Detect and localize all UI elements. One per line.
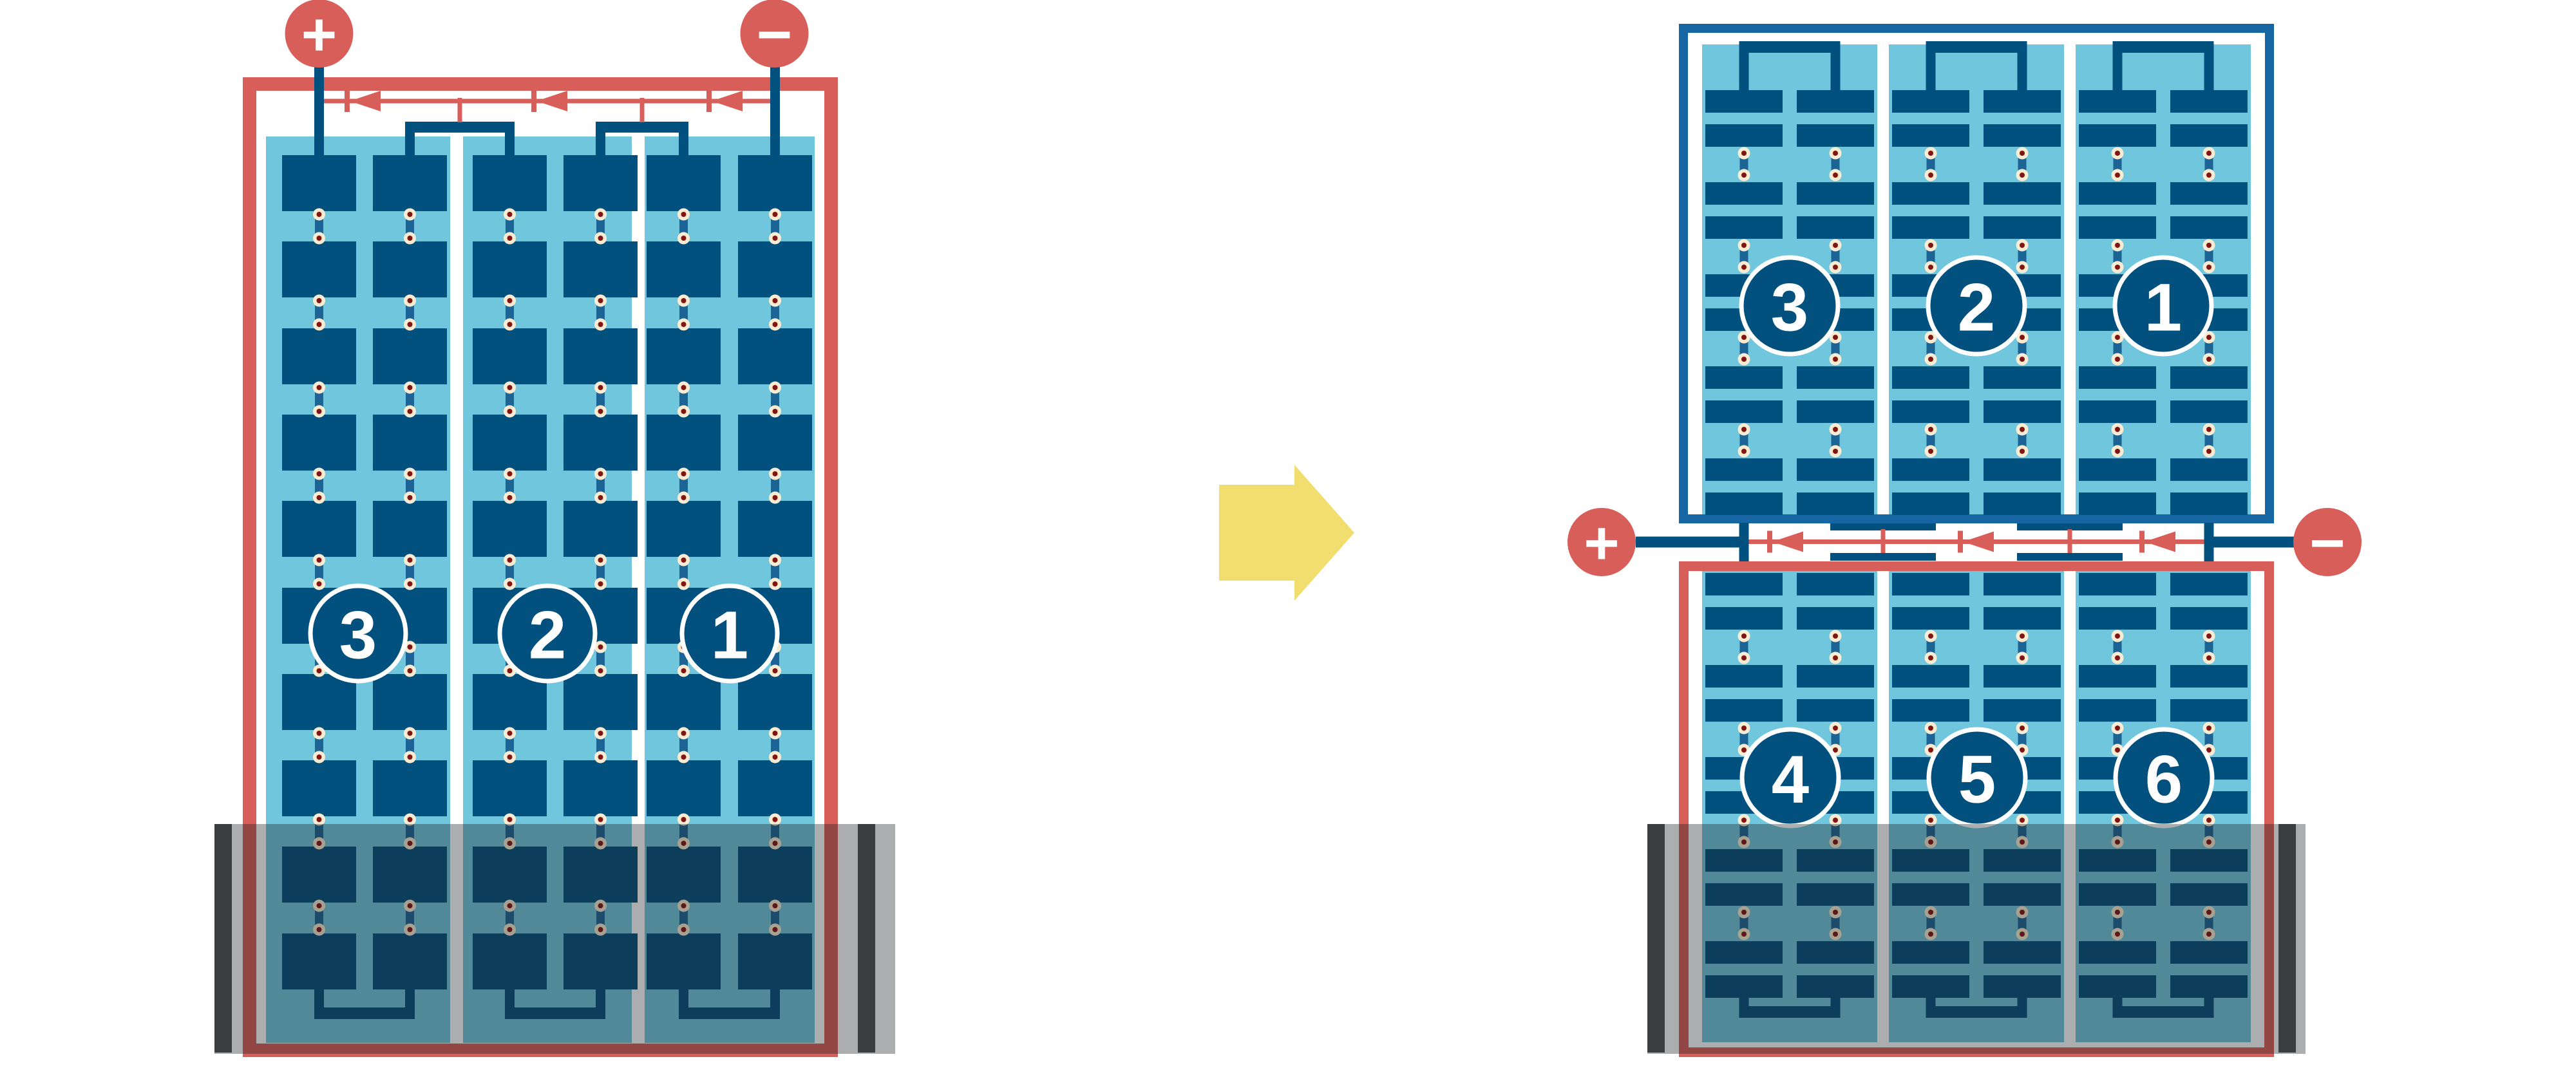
- solder-dot: [1833, 655, 1838, 660]
- solder-dot: [2115, 173, 2120, 178]
- solder-dot: [598, 322, 603, 327]
- solder-dot: [773, 236, 778, 241]
- solder-dot: [2020, 151, 2025, 156]
- solder-dot: [1928, 151, 1933, 156]
- solar-cell: [1984, 458, 2061, 481]
- solder-dot: [317, 385, 322, 390]
- solar-cell: [1705, 458, 1783, 481]
- solder-dot: [408, 668, 413, 673]
- shade-wall: [858, 824, 875, 1053]
- solar-cell: [1705, 400, 1783, 423]
- solar-cell: [2170, 216, 2248, 239]
- solar-cell: [647, 674, 721, 730]
- solder-dot: [681, 212, 687, 217]
- solder-dot: [2020, 449, 2025, 454]
- badge-number: 2: [1958, 270, 1995, 346]
- solder-dot: [2115, 335, 2120, 340]
- solder-dot: [1741, 655, 1747, 660]
- solder-dot: [2115, 151, 2120, 156]
- solder-dot: [2206, 427, 2211, 432]
- turnaround-bar: [2113, 41, 2214, 53]
- solder-dot: [507, 298, 513, 303]
- solder-dot: [773, 557, 778, 563]
- solder-dot: [317, 409, 322, 414]
- solar-cell: [282, 501, 356, 557]
- solar-cell: [563, 241, 638, 297]
- solder-dot: [507, 581, 513, 586]
- solar-cell: [2079, 699, 2156, 722]
- junction-stub: [2017, 553, 2123, 561]
- solder-dot: [773, 322, 778, 327]
- solder-dot: [1928, 427, 1933, 432]
- solder-dot: [2115, 655, 2120, 660]
- solar-cell: [1984, 665, 2061, 688]
- solder-dot: [2020, 427, 2025, 432]
- solar-cell: [2170, 458, 2248, 481]
- solder-dot: [317, 731, 322, 736]
- right-module: 321456+−: [1567, 28, 2362, 1054]
- solder-dot: [317, 236, 322, 241]
- bypass-diode-icon: [706, 90, 743, 112]
- solder-dot: [2115, 633, 2120, 639]
- solder-dot: [2206, 173, 2211, 178]
- solar-cell: [2170, 665, 2248, 688]
- solar-cell: [1705, 573, 1783, 595]
- solar-cell: [1892, 665, 1969, 688]
- solder-dot: [1833, 818, 1838, 823]
- solder-dot: [681, 817, 687, 822]
- solar-cell: [1984, 607, 2061, 630]
- solar-cell: [738, 241, 812, 297]
- solder-dot: [408, 817, 413, 822]
- solder-dot: [317, 668, 322, 673]
- bypass-diode-icon: [1958, 531, 1994, 553]
- solar-cell: [2170, 400, 2248, 423]
- solder-dot: [1833, 243, 1838, 248]
- diode-triangle: [536, 91, 567, 111]
- solar-cell: [647, 760, 721, 816]
- negative-terminal: −: [2293, 508, 2362, 577]
- string-number-badge: 5: [1929, 729, 2025, 826]
- string-number-badge: 3: [1741, 258, 1838, 354]
- terminal-sign: +: [1584, 509, 1619, 577]
- solder-dot: [681, 236, 687, 241]
- solder-dot: [1833, 173, 1838, 178]
- solder-dot: [408, 471, 413, 476]
- solder-dot: [2020, 633, 2025, 639]
- terminal-sign: +: [301, 1, 337, 69]
- solder-dot: [2115, 449, 2120, 454]
- badge-number: 3: [339, 598, 377, 673]
- solder-dot: [408, 557, 413, 563]
- solar-cell: [373, 760, 447, 816]
- solar-cell: [2170, 182, 2248, 205]
- solder-dot: [317, 322, 322, 327]
- solar-cell: [1892, 400, 1969, 423]
- solder-dot: [408, 212, 413, 217]
- solder-dot: [681, 557, 687, 563]
- solder-dot: [2115, 747, 2120, 753]
- solder-dot: [507, 731, 513, 736]
- solar-cell: [563, 760, 638, 816]
- bypass-diode-icon: [1767, 531, 1803, 553]
- solar-cell: [2170, 607, 2248, 630]
- solder-dot: [598, 385, 603, 390]
- solar-cell: [473, 760, 547, 816]
- solar-cell: [1984, 216, 2061, 239]
- shade-wall: [1647, 824, 1665, 1053]
- diode-triangle: [2145, 532, 2175, 552]
- solar-cell: [1797, 492, 1874, 515]
- bypass-diode-icon: [2139, 531, 2175, 553]
- solder-dot: [773, 385, 778, 390]
- solder-dot: [1741, 427, 1747, 432]
- solder-dot: [598, 236, 603, 241]
- solar-cell: [282, 155, 356, 211]
- badge-number: 4: [1772, 742, 1809, 818]
- solder-dot: [1833, 427, 1838, 432]
- solar-cell: [2079, 216, 2156, 239]
- solder-dot: [1741, 173, 1747, 178]
- solder-dot: [681, 298, 687, 303]
- turnaround-bar: [1739, 41, 1841, 53]
- string-number-badge: 2: [1928, 258, 2025, 354]
- solar-cell: [1705, 665, 1783, 688]
- diode-tap-stub: [1881, 529, 1886, 553]
- badge-number: 5: [1958, 742, 1996, 818]
- solar-cell: [1892, 124, 1969, 147]
- solder-dot: [317, 817, 322, 822]
- solder-dot: [1928, 243, 1933, 248]
- solder-dot: [2020, 265, 2025, 270]
- solar-cell: [1892, 216, 1969, 239]
- solar-cell: [373, 501, 447, 557]
- solder-dot: [317, 581, 322, 586]
- solder-dot: [2206, 357, 2211, 362]
- solar-cell: [1892, 607, 1969, 630]
- solar-cell: [2170, 124, 2248, 147]
- solar-cell: [473, 415, 547, 471]
- solar-cell: [1705, 699, 1783, 722]
- bypass-diode-icon: [531, 90, 567, 112]
- solder-dot: [681, 581, 687, 586]
- diode-cathode-bar: [531, 90, 536, 112]
- solar-cell: [2079, 458, 2156, 481]
- solder-dot: [2206, 818, 2211, 823]
- solder-dot: [507, 322, 513, 327]
- solder-dot: [2020, 818, 2025, 823]
- solar-cell: [563, 674, 638, 730]
- solar-cell: [282, 760, 356, 816]
- junction-bar: [596, 122, 688, 133]
- solar-cell: [1705, 216, 1783, 239]
- solder-dot: [2206, 655, 2211, 660]
- solar-cell: [563, 328, 638, 384]
- solar-cell: [1797, 216, 1874, 239]
- left-module: 321+−: [214, 0, 895, 1054]
- solder-dot: [507, 817, 513, 822]
- solder-dot: [507, 668, 513, 673]
- solder-dot: [1833, 633, 1838, 639]
- solder-dot: [2020, 726, 2025, 731]
- right-module-top-half: 321: [1683, 28, 2269, 519]
- solar-cell: [473, 674, 547, 730]
- solder-dot: [598, 817, 603, 822]
- bypass-diode-line: [319, 90, 775, 112]
- solder-dot: [1928, 726, 1933, 731]
- solder-dot: [408, 731, 413, 736]
- terminal-sign: −: [2309, 509, 2345, 577]
- solder-dot: [1833, 357, 1838, 362]
- solar-cell: [282, 415, 356, 471]
- solar-cell: [738, 415, 812, 471]
- solar-cell: [2170, 699, 2248, 722]
- solar-cell: [1984, 182, 2061, 205]
- solar-cell: [1892, 458, 1969, 481]
- solar-cell: [282, 328, 356, 384]
- transform-arrow-icon: [1219, 465, 1354, 601]
- badge-number: 2: [529, 598, 566, 673]
- arrow-head: [1294, 465, 1354, 601]
- solder-dot: [1741, 335, 1747, 340]
- shade-overlay: [1647, 824, 2306, 1054]
- string-number-badge: 1: [2115, 258, 2211, 354]
- solder-dot: [1833, 151, 1838, 156]
- string-number-badge: 6: [2116, 729, 2212, 826]
- solder-dot: [1928, 818, 1933, 823]
- solar-cell: [2079, 366, 2156, 389]
- solder-dot: [1928, 655, 1933, 660]
- turnaround-bar: [1926, 41, 2027, 53]
- solar-cell: [2079, 665, 2156, 688]
- solar-cell: [473, 241, 547, 297]
- solar-cell: [1984, 573, 2061, 595]
- diode-cathode-bar: [1958, 531, 1963, 553]
- solar-cell: [1892, 492, 1969, 515]
- solder-dot: [681, 754, 687, 760]
- solar-cell: [1705, 492, 1783, 515]
- solar-cell: [1797, 607, 1874, 630]
- badge-number: 3: [1771, 270, 1808, 346]
- diode-triangle: [712, 91, 743, 111]
- diode-triangle: [350, 91, 381, 111]
- solder-dot: [408, 495, 413, 500]
- string-number-badge: 3: [310, 586, 406, 681]
- solar-shading-diagram: 321+−321456+−: [0, 0, 2576, 1068]
- shade-wall: [214, 824, 232, 1053]
- solar-cell: [2079, 124, 2156, 147]
- string-number-badge: 1: [682, 586, 777, 681]
- solar-cell: [1797, 366, 1874, 389]
- solar-cell: [1892, 699, 1969, 722]
- diode-triangle: [1963, 532, 1994, 552]
- solder-dot: [2206, 449, 2211, 454]
- solar-cell: [1797, 182, 1874, 205]
- solder-dot: [1928, 747, 1933, 753]
- solar-cell: [1984, 90, 2061, 113]
- solder-dot: [408, 236, 413, 241]
- solar-cell: [2079, 182, 2156, 205]
- solder-dot: [2206, 243, 2211, 248]
- solder-dot: [598, 668, 603, 673]
- diode-cathode-bar: [706, 90, 712, 112]
- solar-cell: [373, 328, 447, 384]
- solar-cell: [373, 415, 447, 471]
- solar-cell: [1705, 182, 1783, 205]
- solder-dot: [408, 385, 413, 390]
- solder-dot: [1741, 747, 1747, 753]
- solder-dot: [1741, 818, 1747, 823]
- solder-dot: [773, 495, 778, 500]
- solder-dot: [681, 322, 687, 327]
- solar-cell: [563, 415, 638, 471]
- solder-dot: [408, 298, 413, 303]
- solder-dot: [681, 471, 687, 476]
- solar-cell: [647, 241, 721, 297]
- solar-cell: [1984, 124, 2061, 147]
- solder-dot: [598, 212, 603, 217]
- solder-dot: [2206, 335, 2211, 340]
- solar-cell: [1705, 366, 1783, 389]
- positive-terminal-wire: [1636, 537, 1743, 548]
- solar-cell: [2170, 492, 2248, 515]
- solar-cell: [1797, 665, 1874, 688]
- bypass-diode-icon: [345, 90, 381, 112]
- junction-leg: [505, 122, 515, 161]
- solder-dot: [1928, 335, 1933, 340]
- junction-leg: [596, 122, 605, 161]
- solar-cell: [2170, 90, 2248, 113]
- solder-dot: [507, 495, 513, 500]
- solar-cell: [738, 760, 812, 816]
- junction-leg: [679, 122, 688, 161]
- diode-cathode-bar: [2139, 531, 2145, 553]
- solar-cell: [2079, 400, 2156, 423]
- solar-cell: [2079, 90, 2156, 113]
- solar-cell: [1797, 699, 1874, 722]
- solar-cell: [738, 674, 812, 730]
- solder-dot: [317, 557, 322, 563]
- solder-dot: [408, 754, 413, 760]
- solar-cell: [373, 241, 447, 297]
- solder-dot: [773, 754, 778, 760]
- solar-cell: [1984, 400, 2061, 423]
- solder-dot: [2206, 633, 2211, 639]
- solder-dot: [317, 471, 322, 476]
- positive-terminal: +: [1567, 508, 1636, 577]
- solar-cell: [1984, 366, 2061, 389]
- solar-cell: [1984, 492, 2061, 515]
- shade-group: [1647, 824, 2306, 1054]
- solder-dot: [507, 236, 513, 241]
- solar-cell: [1797, 573, 1874, 595]
- solar-cell: [1705, 124, 1783, 147]
- solar-cell: [1892, 182, 1969, 205]
- solar-cell: [282, 241, 356, 297]
- solder-dot: [2206, 151, 2211, 156]
- solder-dot: [507, 212, 513, 217]
- solder-dot: [2206, 265, 2211, 270]
- solder-dot: [317, 212, 322, 217]
- solder-dot: [317, 495, 322, 500]
- badge-number: 1: [2145, 270, 2182, 346]
- solder-dot: [2206, 726, 2211, 731]
- solar-cell: [1984, 699, 2061, 722]
- solar-cell: [647, 328, 721, 384]
- solar-cell: [738, 501, 812, 557]
- badge-number: 6: [2145, 742, 2183, 818]
- solar-cell: [738, 328, 812, 384]
- diode-cathode-bar: [345, 90, 350, 112]
- diode-cathode-bar: [1767, 531, 1772, 553]
- solder-dot: [598, 298, 603, 303]
- diagram-canvas: 321+−321456+−: [0, 0, 2576, 1068]
- diode-tap-stub: [2068, 529, 2072, 553]
- solder-dot: [681, 385, 687, 390]
- solder-dot: [1928, 633, 1933, 639]
- terminal-sign: −: [757, 1, 792, 69]
- solder-dot: [2115, 243, 2120, 248]
- solar-cell: [1705, 90, 1783, 113]
- solder-dot: [2115, 726, 2120, 731]
- solder-dot: [773, 212, 778, 217]
- solar-cell: [373, 155, 447, 211]
- solder-dot: [681, 409, 687, 414]
- solder-dot: [1833, 265, 1838, 270]
- solder-dot: [598, 557, 603, 563]
- badge-number: 1: [711, 598, 748, 673]
- solder-dot: [598, 581, 603, 586]
- solder-dot: [773, 471, 778, 476]
- solder-dot: [681, 731, 687, 736]
- string-number-badge: 4: [1742, 729, 1839, 826]
- solder-dot: [773, 298, 778, 303]
- solar-cell: [473, 501, 547, 557]
- solder-dot: [2020, 243, 2025, 248]
- junction-leg: [405, 122, 415, 161]
- solder-dot: [1833, 726, 1838, 731]
- solder-dot: [598, 495, 603, 500]
- arrow-shaft: [1219, 485, 1294, 581]
- solder-dot: [507, 471, 513, 476]
- solar-cell: [2079, 573, 2156, 595]
- solder-dot: [1928, 357, 1933, 362]
- solar-cell: [647, 501, 721, 557]
- solar-cell: [647, 155, 721, 211]
- junction-stub: [1830, 553, 1936, 561]
- shade-overlay: [214, 824, 895, 1054]
- solder-dot: [1741, 151, 1747, 156]
- positive-terminal: +: [285, 0, 354, 69]
- solder-dot: [2115, 265, 2120, 270]
- solder-dot: [773, 581, 778, 586]
- solar-cell: [473, 328, 547, 384]
- solar-cell: [2079, 492, 2156, 515]
- solder-dot: [408, 322, 413, 327]
- solder-dot: [507, 409, 513, 414]
- solder-dot: [2020, 357, 2025, 362]
- solar-cell: [1797, 400, 1874, 423]
- solar-cell: [1892, 90, 1969, 113]
- solar-cell: [2170, 366, 2248, 389]
- solar-cell: [1797, 458, 1874, 481]
- solder-dot: [317, 754, 322, 760]
- solder-dot: [598, 409, 603, 414]
- negative-terminal: −: [741, 0, 809, 69]
- solder-dot: [773, 668, 778, 673]
- solder-dot: [1833, 449, 1838, 454]
- solar-cell: [738, 155, 812, 211]
